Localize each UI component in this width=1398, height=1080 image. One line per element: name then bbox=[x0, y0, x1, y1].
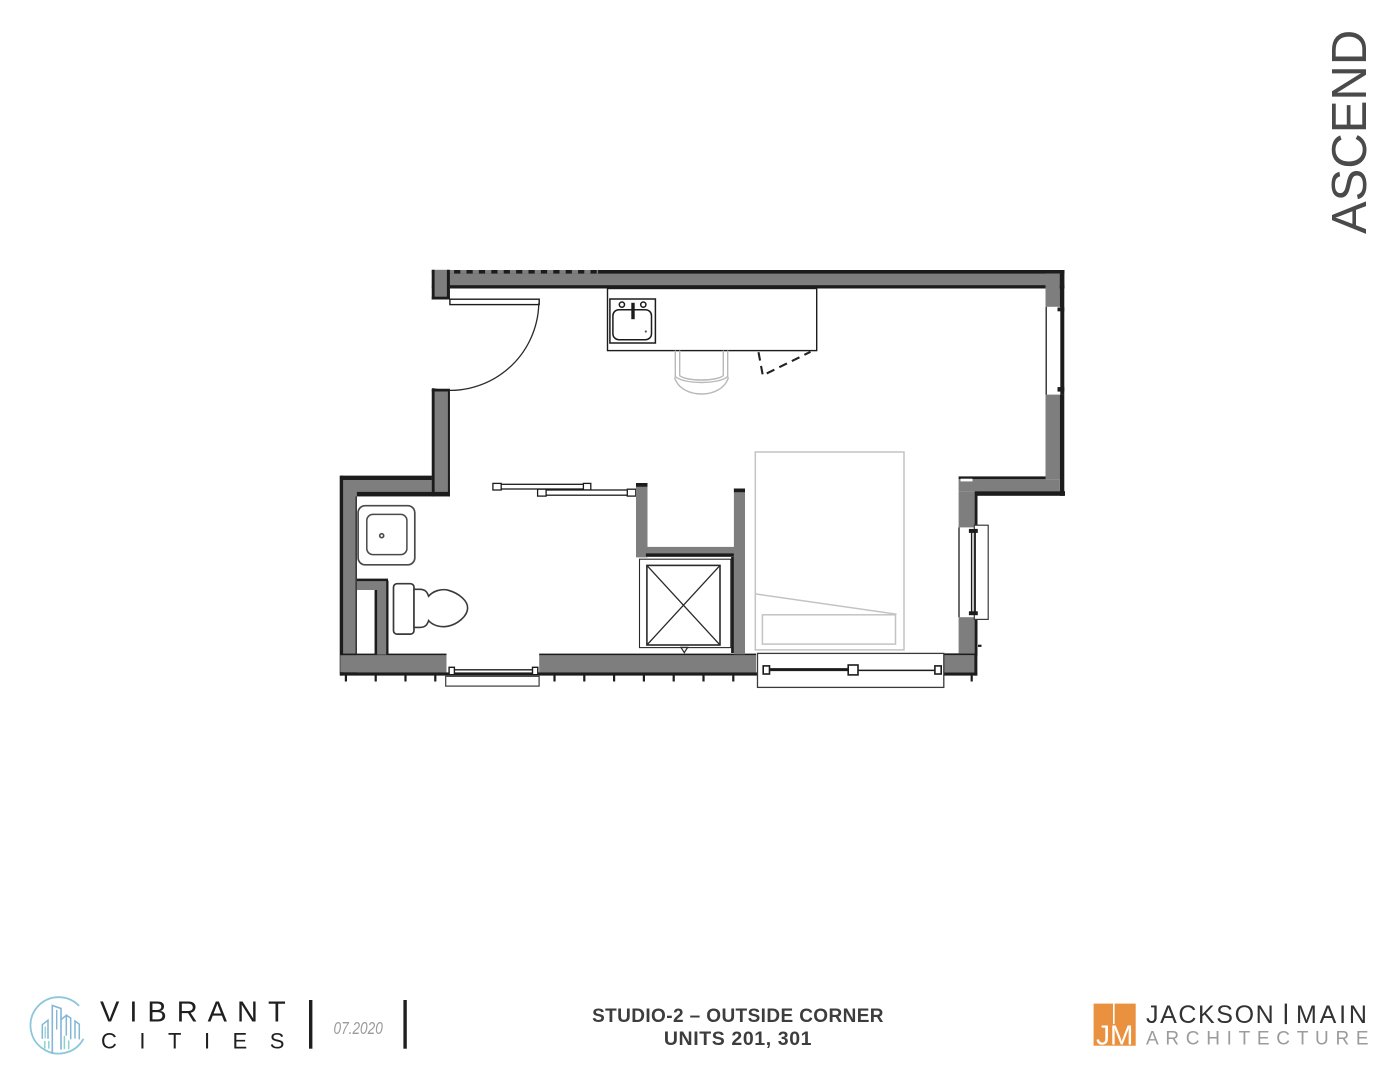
svg-text:VIBRANT: VIBRANT bbox=[100, 997, 296, 1029]
svg-text:CITIES: CITIES bbox=[101, 1029, 307, 1054]
svg-text:STUDIO-2 – OUTSIDE CORNER: STUDIO-2 – OUTSIDE CORNER bbox=[592, 1006, 884, 1027]
svg-text:JM: JM bbox=[1096, 1020, 1133, 1051]
svg-text:JACKSON: JACKSON bbox=[1146, 1001, 1275, 1029]
svg-text:07.2020: 07.2020 bbox=[334, 1020, 384, 1039]
svg-text:UNITS 201, 301: UNITS 201, 301 bbox=[664, 1028, 812, 1050]
svg-text:MAIN: MAIN bbox=[1296, 1001, 1370, 1029]
svg-text:ASCEND: ASCEND bbox=[1323, 30, 1377, 234]
svg-text:ARCHITECTURE: ARCHITECTURE bbox=[1146, 1029, 1375, 1050]
